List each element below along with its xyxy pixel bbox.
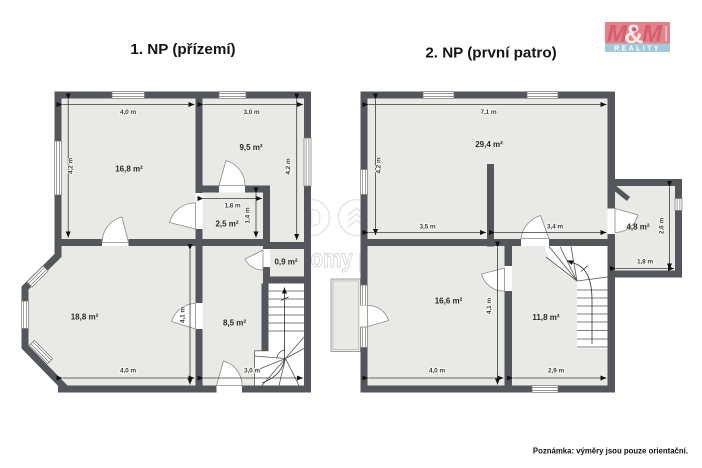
- svg-text:4,2 m: 4,2 m: [376, 157, 383, 173]
- svg-text:2. NP (první patro): 2. NP (první patro): [425, 45, 556, 62]
- svg-text:29,4 m²: 29,4 m²: [475, 140, 503, 149]
- svg-text:3,0 m: 3,0 m: [244, 368, 260, 375]
- svg-text:11,8 m²: 11,8 m²: [532, 313, 559, 322]
- svg-text:1,8 m: 1,8 m: [637, 259, 653, 266]
- svg-text:2,5 m²: 2,5 m²: [215, 219, 238, 228]
- svg-text:4,0 m: 4,0 m: [120, 109, 136, 116]
- svg-text:4,8 m²: 4,8 m²: [626, 222, 649, 231]
- svg-text:3,5 m: 3,5 m: [419, 224, 435, 231]
- svg-text:1. NP (přízemí): 1. NP (přízemí): [130, 41, 235, 58]
- svg-text:0,9 m²: 0,9 m²: [274, 257, 297, 266]
- svg-text:REALITY: REALITY: [614, 45, 661, 52]
- svg-text:M: M: [642, 21, 663, 48]
- svg-text:1,4 m: 1,4 m: [245, 207, 252, 223]
- svg-text:1,8 m: 1,8 m: [224, 202, 240, 209]
- svg-text:4,1 m: 4,1 m: [486, 298, 493, 314]
- svg-text:18,8 m²: 18,8 m²: [71, 312, 99, 321]
- svg-text:8,5 m²: 8,5 m²: [223, 318, 246, 327]
- svg-text:2,6 m: 2,6 m: [659, 218, 666, 234]
- svg-text:4,0 m: 4,0 m: [120, 368, 136, 375]
- svg-text:9,5 m²: 9,5 m²: [239, 143, 262, 152]
- svg-text:4,0 m: 4,0 m: [429, 368, 445, 375]
- svg-text:4,2 m: 4,2 m: [285, 158, 292, 174]
- svg-text:3,0 m: 3,0 m: [243, 109, 259, 116]
- svg-text:4,2 m: 4,2 m: [68, 158, 75, 174]
- svg-text:2,9 m: 2,9 m: [548, 368, 564, 375]
- svg-text:Poznámka: výměry jsou pouze or: Poznámka: výměry jsou pouze orientační.: [533, 447, 688, 456]
- svg-text:16,6 m²: 16,6 m²: [435, 296, 463, 305]
- svg-text:3,4 m: 3,4 m: [547, 224, 563, 231]
- svg-text:16,8 m²: 16,8 m²: [115, 165, 143, 174]
- svg-text:4,1 m: 4,1 m: [180, 307, 187, 323]
- svg-text:7,1 m: 7,1 m: [480, 109, 496, 116]
